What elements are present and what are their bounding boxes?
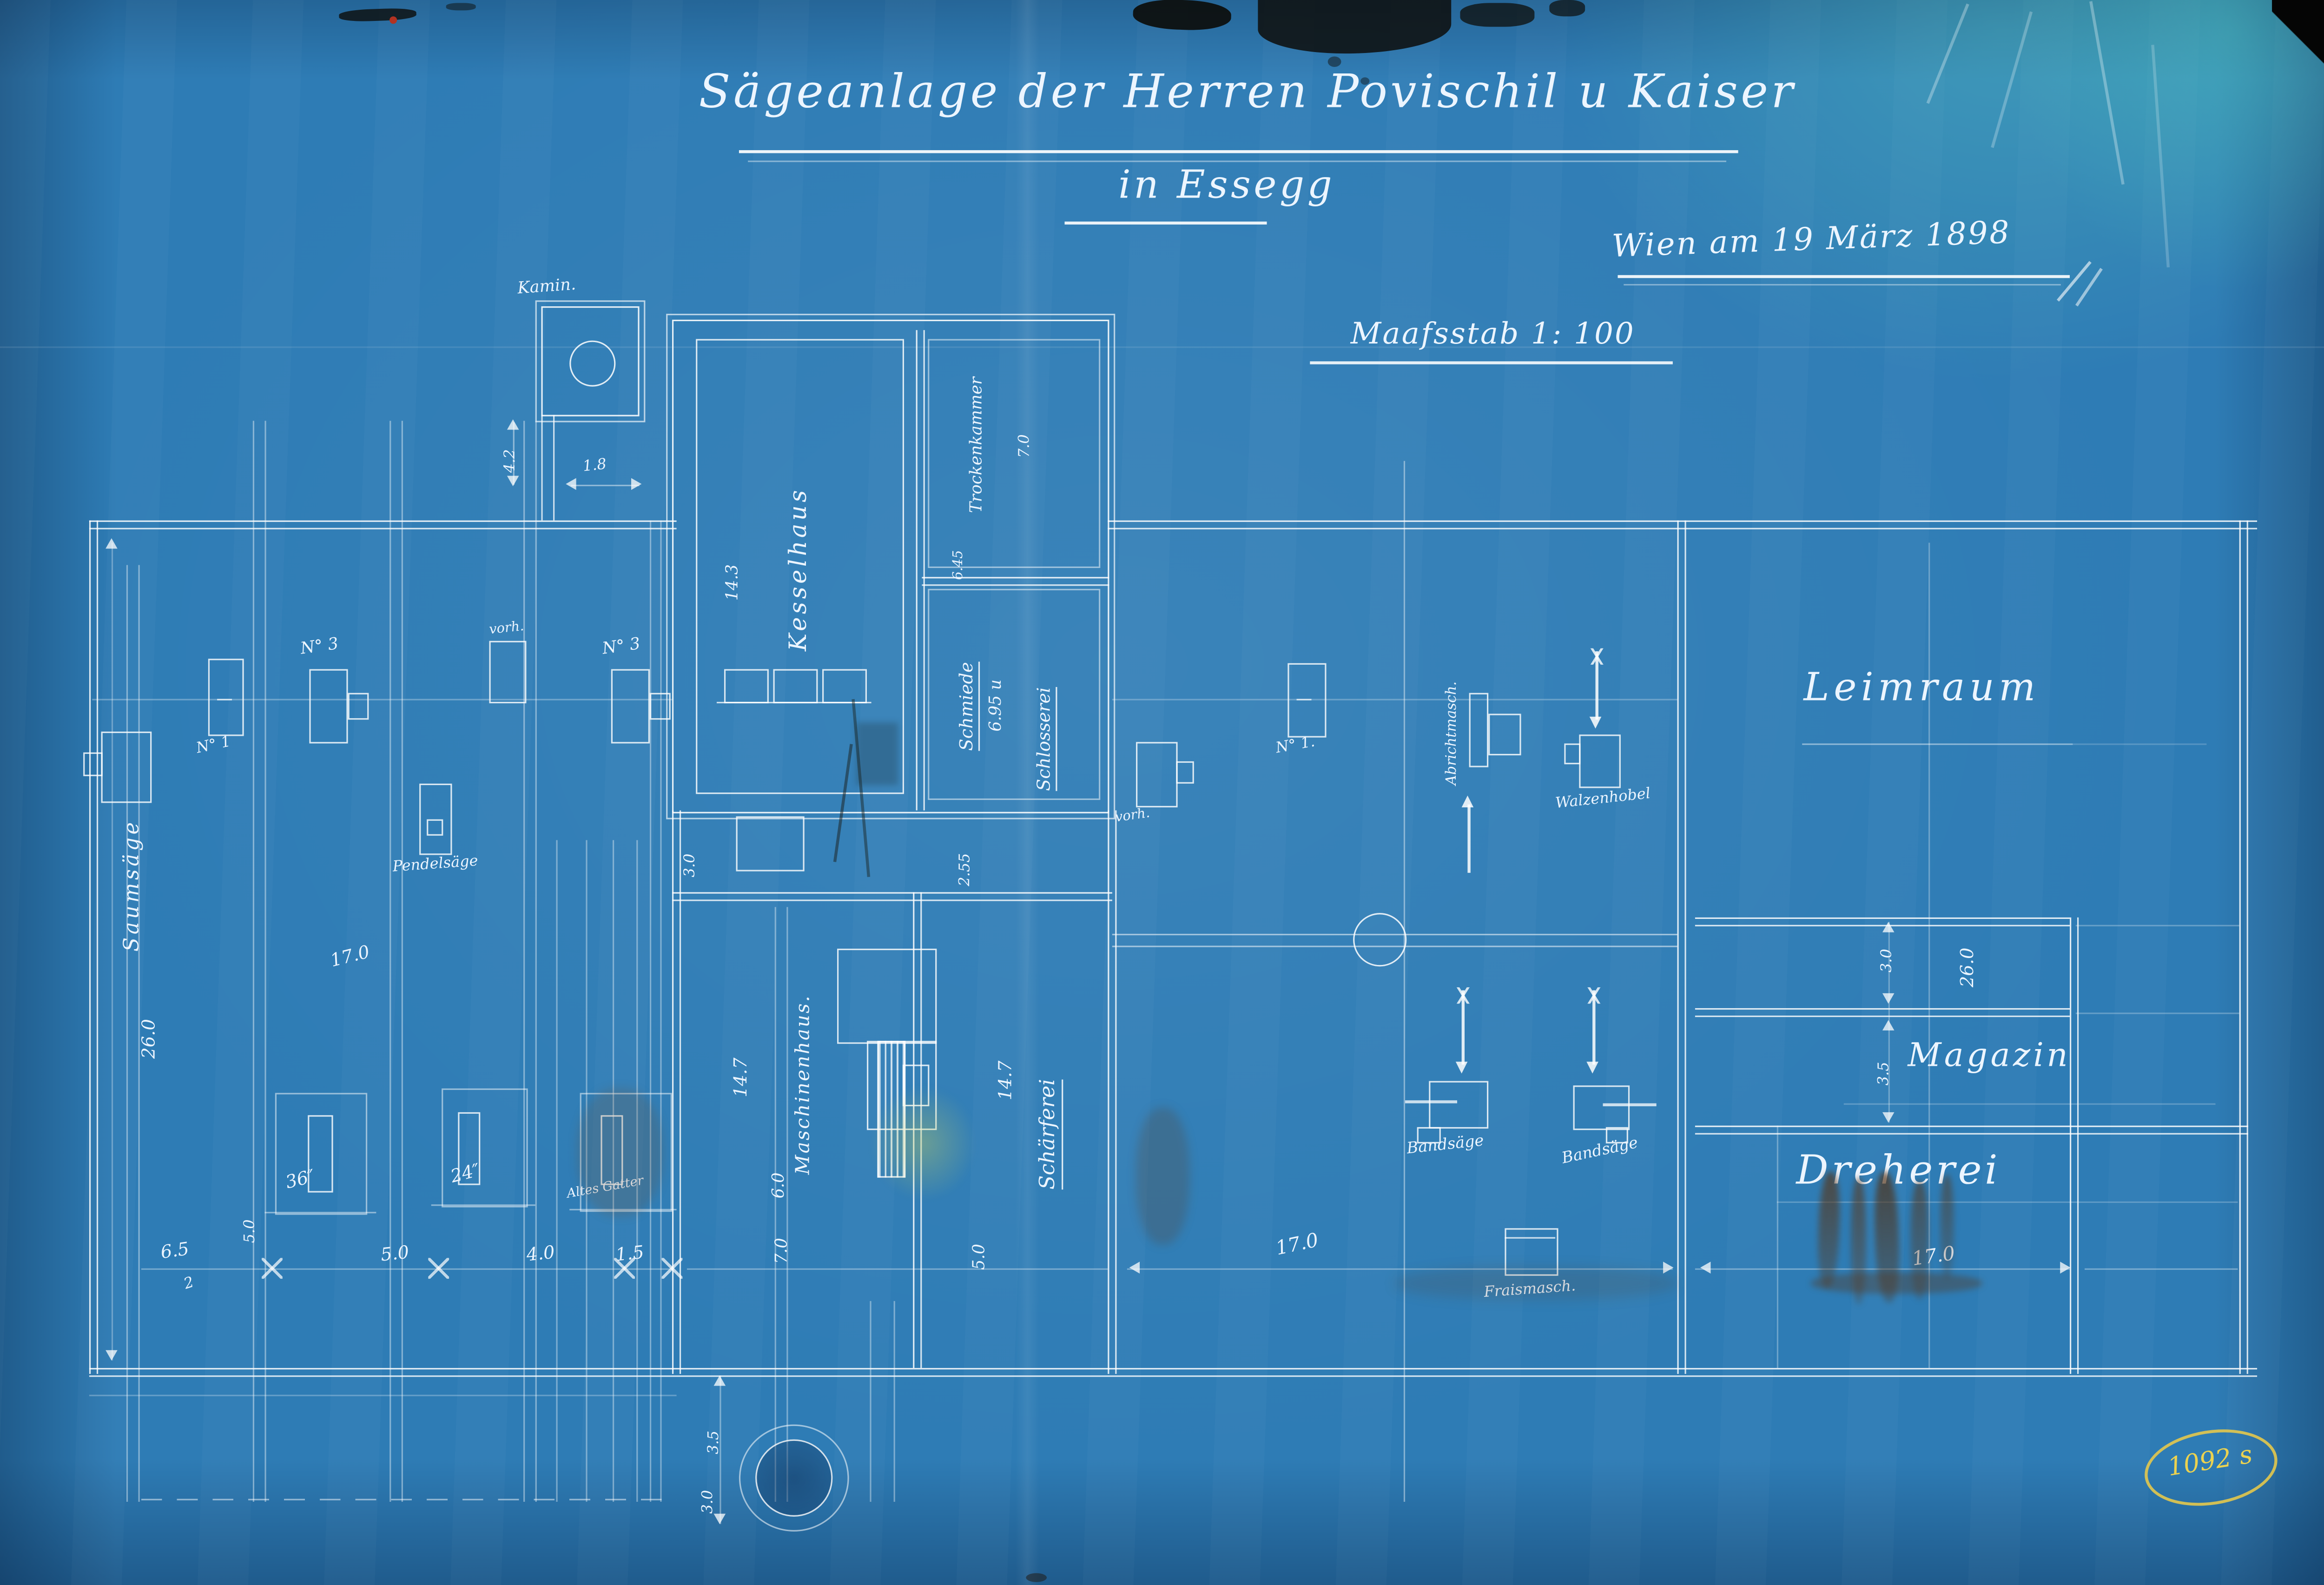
scale-underline	[1310, 361, 1673, 364]
dim-maschinenhaus-147: 14.7	[730, 1057, 751, 1097]
arrowhead	[1129, 1261, 1140, 1274]
sheet-title: Sägeanlage der Herren Povischil u Kaiser	[699, 66, 1755, 119]
red-speck	[390, 16, 397, 24]
ink-damage-mark	[1258, 0, 1451, 53]
kesselhaus-divider	[916, 330, 925, 810]
machine-walzenhobel	[1579, 734, 1621, 788]
dim-chain-2	[687, 1268, 1108, 1270]
arrowhead	[1882, 1112, 1895, 1123]
dim-gang-30: 3.0	[1880, 949, 1896, 972]
rail-line	[870, 1301, 871, 1502]
rust-smudge	[1811, 1273, 1982, 1294]
dim-corridor-255: 2.55	[957, 853, 974, 886]
machine-label-vorh-a: vorh.	[489, 620, 525, 638]
dim-schaerferei-147: 14.7	[995, 1061, 1016, 1100]
dim-chain-5	[2085, 1268, 2238, 1270]
corridor-line-1	[2076, 925, 2239, 927]
leimraum-underline-ext	[2073, 744, 2206, 746]
dim-corridor-30: 3.0	[682, 854, 699, 878]
yard-dashed-line	[141, 1499, 677, 1501]
arrowhead	[566, 478, 576, 490]
arrowhead	[631, 478, 641, 490]
dim-laenge-260: 26.0	[1957, 948, 1978, 987]
machine-saumsaege	[101, 732, 152, 803]
arrow-head	[1590, 717, 1602, 729]
kamin-stem-wall-2	[553, 415, 555, 521]
furnace-baseline	[717, 702, 871, 704]
ink-damage-mark	[1549, 0, 1585, 16]
machine-label-pendelsaege: Pendelsäge	[392, 853, 479, 876]
rail-line	[660, 521, 662, 1502]
machine-gatter-n3b-motor	[650, 693, 671, 720]
wall-midhall-right	[1677, 521, 1686, 1374]
machine-gatter-n3b	[611, 669, 650, 744]
machine-fraismaschine-line	[1505, 1237, 1555, 1239]
ink-speck	[1026, 1573, 1047, 1582]
machine-label-n3a: N° 3	[299, 634, 340, 659]
room-label-schlosserei: Schlosserei	[1033, 687, 1057, 791]
rail-line	[126, 565, 128, 1502]
room-label-trockenkammer: Trockenkammer	[966, 377, 986, 513]
machine-bandsaege-b-arm	[1603, 1103, 1657, 1106]
sheet-subtitle: in Essegg	[699, 164, 1755, 208]
machine-gatter-n3a-motor	[348, 693, 369, 720]
wall-left	[89, 521, 98, 1374]
corridor-line-2	[2076, 1013, 2239, 1015]
machine-bandsaege-a-arm	[1405, 1100, 1457, 1103]
machine-label-walzenhobel: Walzenhobel	[1555, 786, 1651, 812]
arrowhead	[1663, 1261, 1673, 1274]
dim-cross-mark	[262, 1258, 283, 1279]
pencil-smudge	[857, 723, 898, 785]
arrowhead	[714, 1514, 726, 1524]
machine-vorhanden-b	[1136, 742, 1178, 807]
dim-kesselhaus-143: 14.3	[723, 564, 742, 601]
dim-sawhall-170: 17.0	[328, 941, 372, 971]
dim-schaerferei-50: 5.0	[970, 1244, 989, 1270]
dim-chain-1	[141, 1268, 672, 1270]
room-label-kamin: Kamin.	[517, 275, 576, 298]
arrowhead	[507, 476, 519, 486]
dim-line-kamin-h	[571, 485, 639, 487]
leimraum-underline	[1802, 744, 2073, 746]
flow-arrow-down	[1588, 651, 1606, 728]
wall-maschinenhaus-top	[672, 892, 1112, 901]
machine-label-n3b: N° 3	[601, 634, 641, 659]
arrow-shaft	[1593, 991, 1595, 1065]
trockenkammer-divider	[922, 577, 1109, 586]
machine-gatter-n1b-tick	[1297, 699, 1312, 701]
room-label-schaerferei: Schärferei	[1037, 1079, 1063, 1189]
room-label-leimraum: Leimraum	[1803, 666, 2040, 711]
dim-bottom-15: 1.5	[614, 1242, 645, 1265]
crease-line	[1927, 3, 1969, 103]
boiler-furnace-1	[724, 669, 769, 704]
arrowhead	[1882, 993, 1895, 1004]
machine-abricht-table	[1469, 693, 1489, 767]
wall-right	[2239, 521, 2248, 1374]
arrowhead	[1882, 922, 1895, 932]
dim-bottom-2: 2	[182, 1275, 196, 1293]
ink-speck	[446, 3, 476, 10]
rust-streak	[1941, 1175, 1954, 1279]
gatter-24-baseline	[431, 1204, 535, 1206]
dim-bottom-65: 6.5	[159, 1238, 191, 1263]
machine-label-n1: N° 1	[195, 734, 232, 757]
dim-well-35: 3.5	[706, 1431, 723, 1454]
trockenkammer-room	[928, 339, 1100, 568]
dim-maschinenhaus-60: 6.0	[769, 1172, 788, 1198]
shaft-wheel-circle	[1353, 913, 1406, 966]
arrow-head	[1456, 1062, 1468, 1074]
dim-schmiede-695: 6.95 u	[986, 680, 1005, 732]
arrow-shaft	[1596, 651, 1598, 720]
machine-label-vorh-b: vorh.	[1114, 806, 1151, 826]
dim-line-sawhall-height	[112, 543, 113, 1360]
room-label-magazin: Magazin	[1908, 1038, 2071, 1075]
machine-vorhanden-a	[489, 641, 526, 703]
dim-cross-mark	[662, 1258, 683, 1279]
well-inner-circle	[755, 1440, 832, 1517]
rail-line	[390, 421, 391, 1502]
yard-line	[89, 1395, 677, 1397]
dim-cross-mark	[428, 1258, 449, 1279]
corridor-notch	[736, 816, 805, 871]
dim-kamin-42: 4.2	[502, 449, 519, 473]
archive-stamp-number: 1092 s	[2145, 1437, 2276, 1486]
stain-green	[870, 1085, 977, 1202]
machine-gatter-n3a	[309, 669, 348, 744]
dim-bottom-40: 4.0	[525, 1242, 555, 1265]
corner-tear-shadow	[2272, 0, 2324, 68]
machine-label-saumsaege: Saumsäge	[120, 819, 144, 952]
ink-damage-mark	[339, 7, 416, 22]
room-label-schmiede: Schmiede	[956, 662, 980, 751]
rail-line	[402, 421, 403, 1502]
title-underline	[739, 150, 1738, 153]
arrow-shaft	[1462, 991, 1464, 1065]
arrowhead	[106, 538, 118, 548]
machine-label-n1b: N° 1.	[1274, 734, 1316, 757]
stain-faint	[1395, 1267, 1677, 1300]
dim-trockenkammer-70: 7.0	[1017, 434, 1033, 458]
arrowhead	[714, 1375, 726, 1386]
wall-right-partition	[2070, 918, 2079, 1374]
rail-line	[556, 840, 558, 1502]
wall-bottom	[89, 1368, 2257, 1377]
machine-saumsaege-motor	[83, 753, 103, 776]
wall-top-left	[89, 521, 677, 529]
machine-abricht-head	[1488, 714, 1521, 756]
arrowhead	[1700, 1261, 1710, 1274]
dim-wall-645: 6.45	[951, 550, 966, 580]
arrow-head	[1587, 1062, 1599, 1074]
machine-gatter-n1	[208, 659, 244, 736]
dim-bottom-50a: 5.0	[242, 1219, 258, 1243]
machine-label-abricht: Abrichtmasch.	[1444, 681, 1460, 785]
subtitle-underline	[1064, 222, 1267, 225]
rail-line	[253, 421, 255, 1502]
arrow-head	[1462, 795, 1474, 807]
rust-streak	[1816, 1171, 1841, 1288]
dim-kamin-18: 1.8	[582, 457, 607, 475]
rail-line	[894, 1301, 896, 1502]
room-label-maschinenhaus: Maschinenhaus.	[792, 994, 815, 1175]
machine-walzenhobel-motor	[1564, 744, 1580, 765]
boiler-furnace-3	[822, 669, 867, 704]
rail-line	[264, 421, 266, 1502]
arrowhead	[1882, 1020, 1895, 1030]
rail-line	[535, 421, 537, 1502]
dim-well-30: 3.0	[700, 1490, 717, 1514]
machine-bandsaege-b	[1573, 1085, 1630, 1130]
machine-label-bandsaege-b: Bandsäge	[1560, 1134, 1640, 1168]
arrowhead	[2060, 1261, 2070, 1274]
ink-speck	[1360, 77, 1369, 85]
rail-line	[775, 907, 777, 1502]
axis-line-dreherei	[1777, 1126, 1779, 1368]
title-underline-2	[748, 160, 1726, 162]
stain-faint	[1136, 1108, 1189, 1244]
dim-midhall-170: 17.0	[1274, 1230, 1321, 1261]
engine-foundation-upper	[837, 949, 937, 1044]
flow-arrow-down	[1585, 991, 1603, 1074]
machine-vorhanden-b-motor	[1176, 761, 1194, 784]
flow-arrow-up	[1460, 795, 1478, 872]
ink-damage-mark	[1133, 0, 1232, 32]
flow-arrow-down	[1454, 991, 1472, 1074]
schmiede-room	[928, 589, 1100, 800]
wall-magazin-top	[1695, 1008, 2070, 1017]
machine-pendelsaege-detail	[427, 819, 443, 836]
blueprint-sheet: Sägeanlage der Herren Povischil u Kaiser…	[0, 0, 2324, 1585]
center-axis-line	[1404, 461, 1406, 1502]
arrow-shaft	[1468, 805, 1470, 873]
machine-gatter-n1-tick	[217, 699, 232, 701]
dim-magazin-35: 3.5	[1876, 1062, 1893, 1085]
kamin-flue-circle	[569, 341, 615, 387]
ink-damage-mark	[1460, 3, 1534, 26]
machine-bandsaege-a	[1429, 1081, 1488, 1129]
dim-sawhall-260: 26.0	[139, 1019, 159, 1058]
arrowhead	[106, 1350, 118, 1360]
rail-line	[650, 521, 652, 1502]
ink-speck	[1328, 57, 1341, 67]
arrowhead	[507, 419, 519, 429]
archive-stamp: 1092 s	[2139, 1420, 2283, 1515]
gatter-36-baseline	[264, 1212, 376, 1214]
gatter-24-pit	[442, 1089, 528, 1208]
scale-note: Maafsstab 1: 100	[1314, 315, 1671, 351]
kamin-stem-wall-1	[541, 415, 543, 521]
paper-crease-horizontal	[0, 346, 2324, 348]
rail-line	[523, 421, 525, 1502]
magazin-line	[1844, 1103, 2216, 1105]
drive-line-sawhall	[92, 699, 672, 701]
boiler-furnace-2	[773, 669, 818, 704]
dim-bottom-50b: 5.0	[380, 1242, 410, 1265]
room-label-kesselhaus: Kesselhaus	[784, 487, 812, 651]
rail-line	[786, 907, 788, 1502]
stain-faint	[577, 1089, 663, 1216]
